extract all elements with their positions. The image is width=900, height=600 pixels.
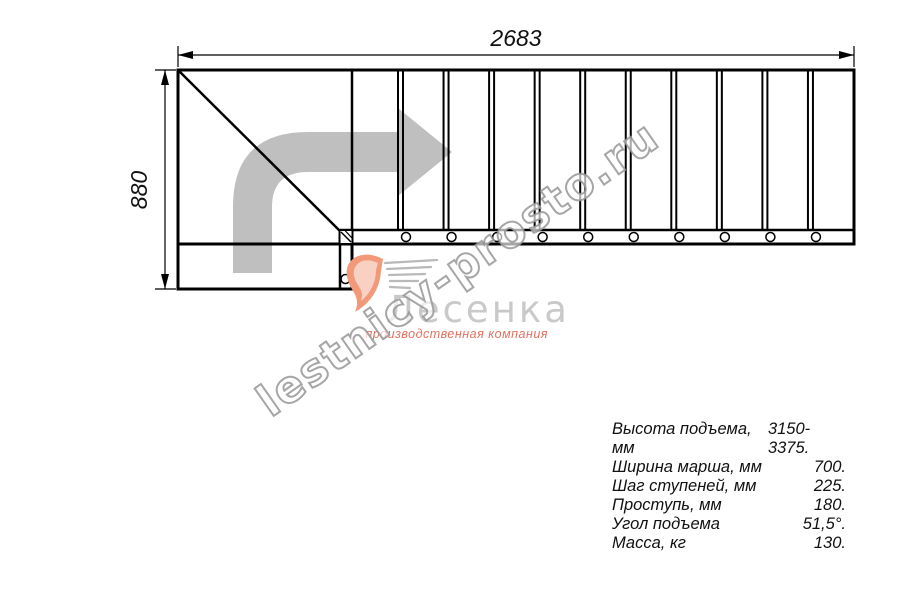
spec-value: 3150-3375.: [768, 420, 846, 458]
bolt-holes: [402, 233, 821, 242]
spec-value: 700.: [814, 458, 846, 477]
spec-value: 225.: [814, 477, 846, 496]
spec-label: Шаг ступеней, мм: [612, 477, 756, 496]
spec-row: Шаг ступеней, мм 225.: [612, 477, 846, 496]
spec-label: Масса, кг: [612, 534, 686, 553]
spec-value: 51,5°.: [803, 515, 846, 534]
dimension-height-label: 880: [126, 171, 152, 210]
dimension-height: [155, 70, 176, 289]
spec-value: 180.: [814, 496, 846, 515]
spec-label: Ширина марша, мм: [612, 458, 762, 477]
spec-label: Угол подъема: [612, 515, 720, 534]
logo-name: Лесенка: [386, 288, 570, 331]
company-logo: Лесенка производственная компания: [347, 255, 570, 341]
spec-label: Высота подъема, мм: [612, 420, 768, 458]
direction-arrow-icon: [233, 108, 452, 273]
spec-value: 130.: [814, 534, 846, 553]
tread-divisions: [398, 70, 813, 230]
dimension-width-label: 2683: [489, 25, 541, 51]
spec-row: Ширина марша, мм 700.: [612, 458, 846, 477]
logo-tagline: производственная компания: [365, 327, 548, 341]
corner-plate-hatch: [340, 230, 353, 244]
spec-row: Масса, кг 130.: [612, 534, 846, 553]
spec-label: Проступь, мм: [612, 496, 722, 515]
spec-table: Высота подъема, мм 3150-3375. Ширина мар…: [612, 420, 846, 553]
spec-row: Проступь, мм 180.: [612, 496, 846, 515]
stair-drawing-page: 2683 880 Лесенка: [0, 0, 900, 600]
spec-row: Угол подъема 51,5°.: [612, 515, 846, 534]
spec-row: Высота подъема, мм 3150-3375.: [612, 420, 846, 458]
